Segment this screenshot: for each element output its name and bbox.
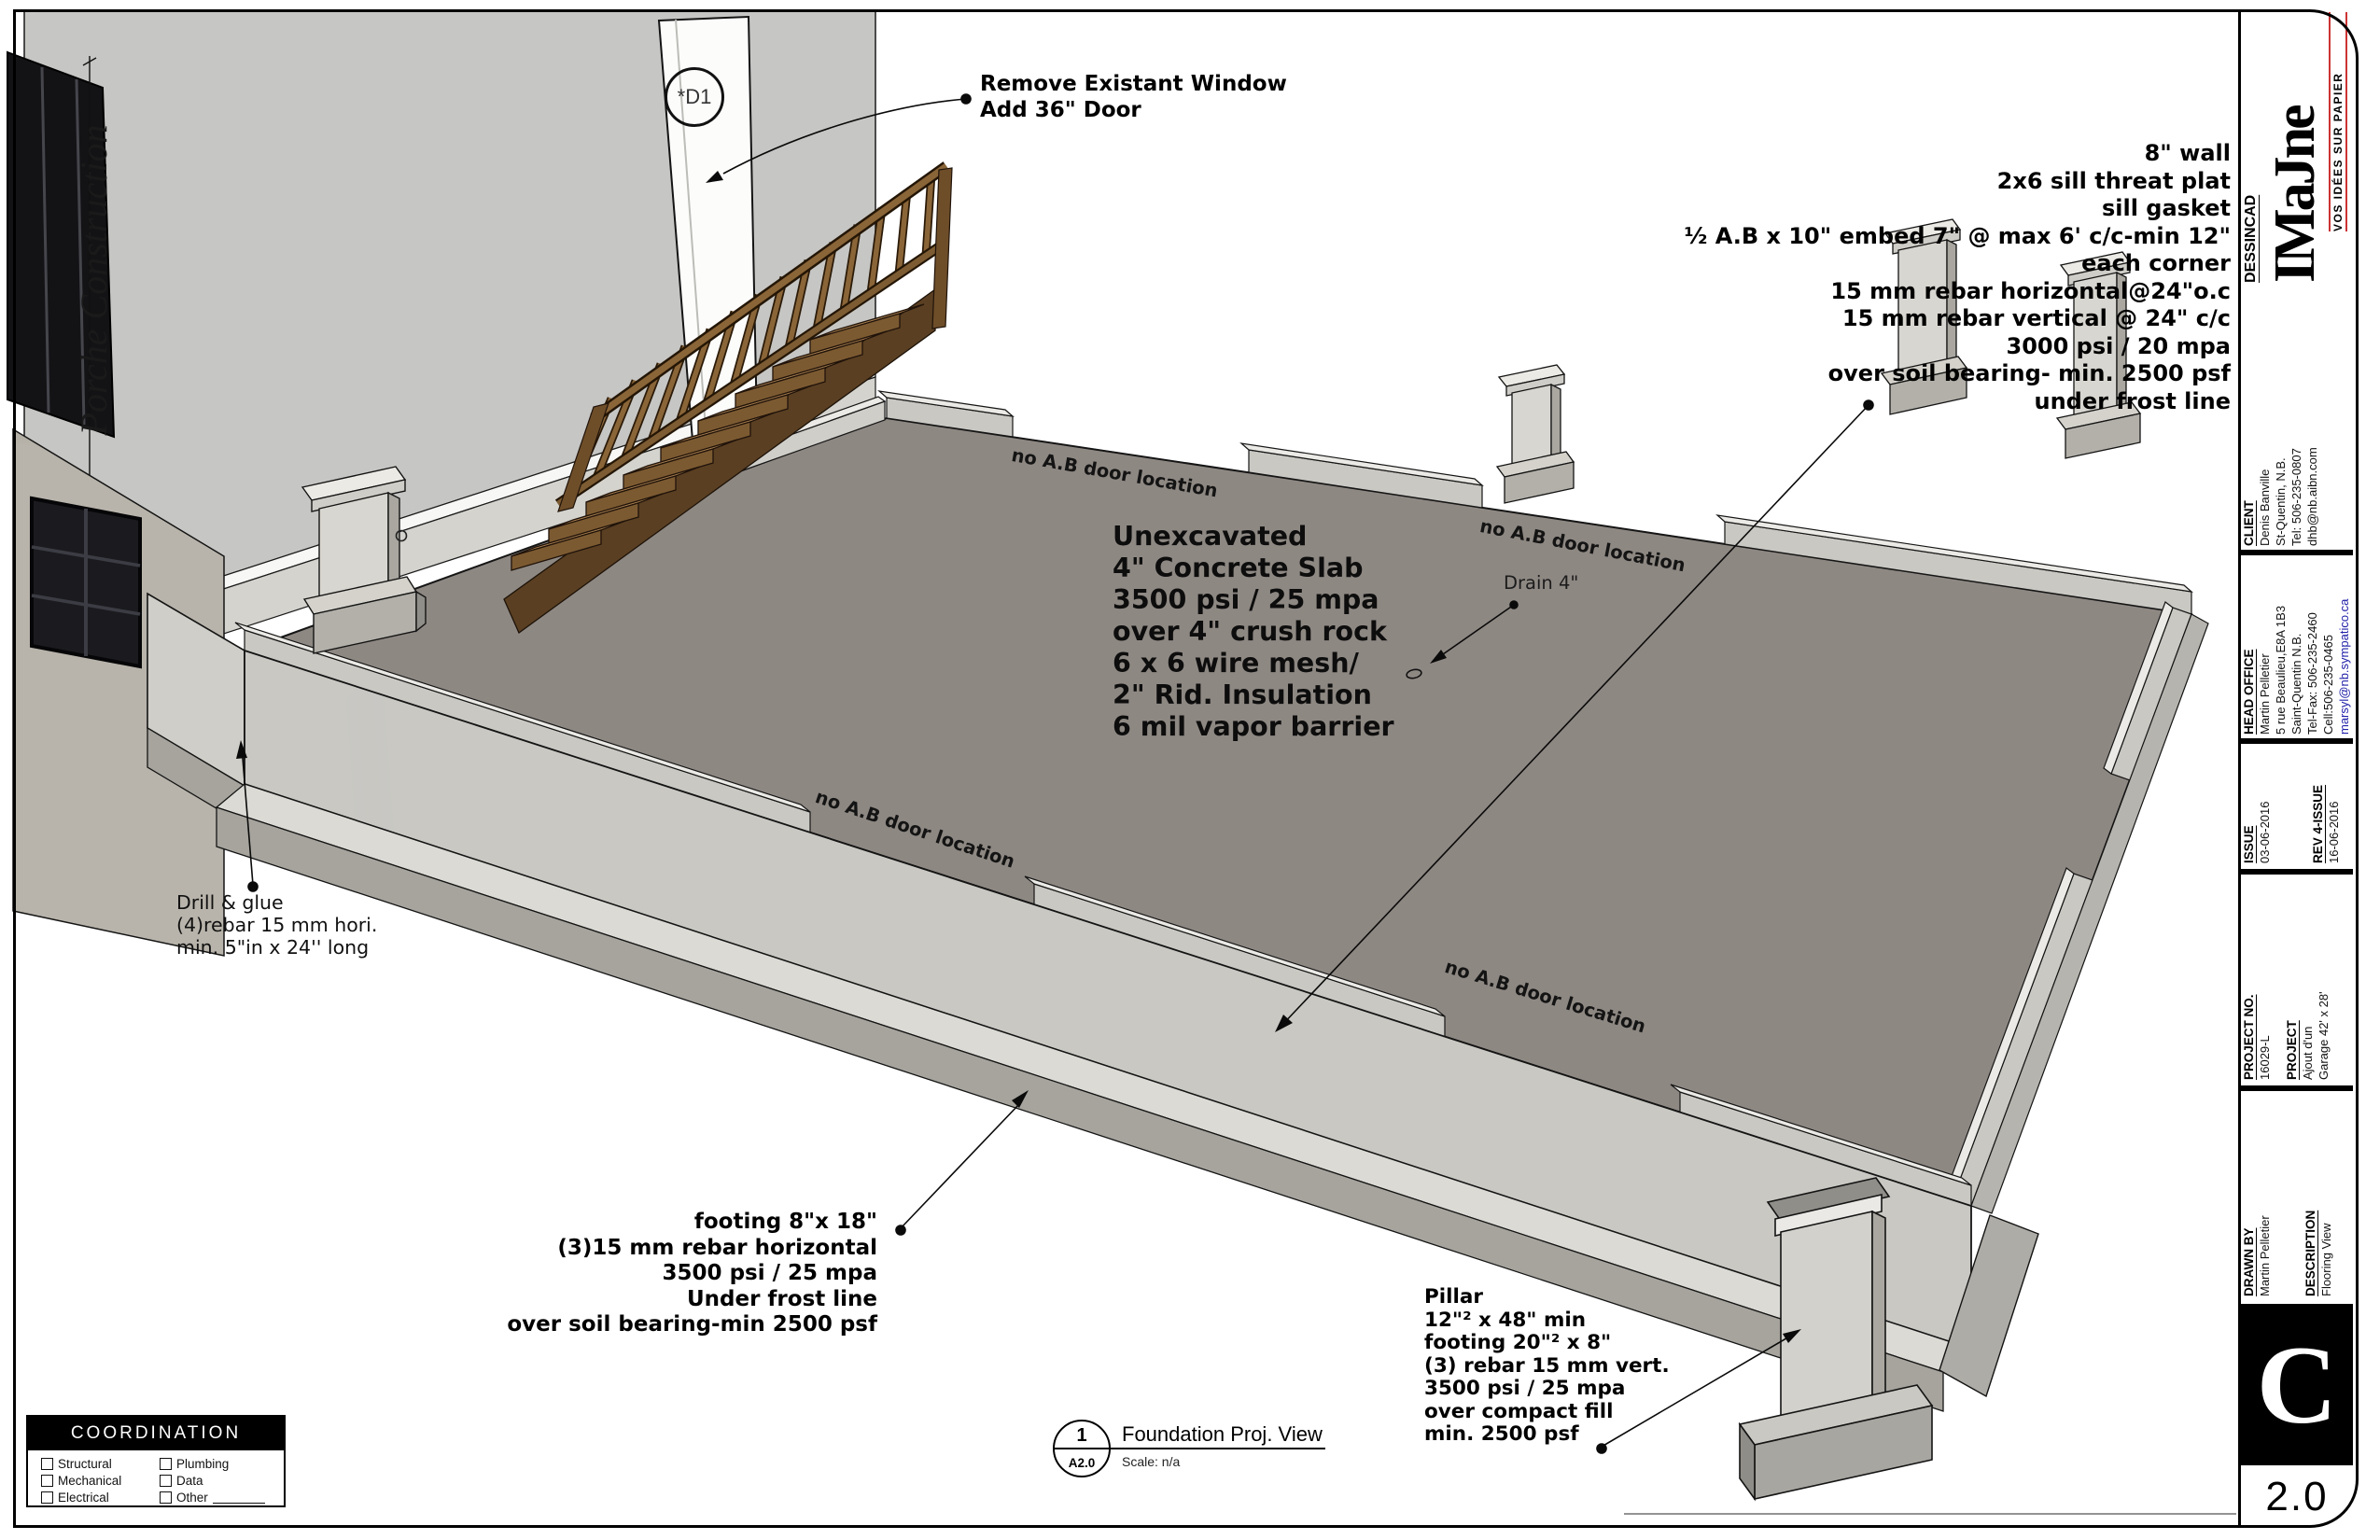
- view-title: Foundation Proj. View: [1122, 1422, 1323, 1447]
- checkbox-icon: [160, 1475, 172, 1487]
- title-block-project: PROJECT NO. 16029-L PROJECT Ajout d'un G…: [2241, 875, 2353, 1085]
- other-blank-line: [213, 1491, 265, 1504]
- wall-spec-note: 8" wall 2x6 sill threat plat sill gasket…: [1491, 140, 2231, 415]
- title-block-drawn-by: DRAWN BY Martin Pelletier DESCRIPTION Fl…: [2241, 1091, 2353, 1304]
- coordination-item-electrical: Electrical: [41, 1489, 160, 1505]
- email-link: marsyl@nb.sympatico.ca: [2336, 555, 2352, 735]
- note-line: min. 5"in x 24'' long: [176, 936, 377, 959]
- title-block-logo: DESSINCAD IMaJne VOS IDÉES SUR PAPIER: [2241, 12, 2353, 413]
- checkbox-icon: [160, 1491, 172, 1504]
- view-number: 1: [1055, 1425, 1109, 1447]
- note-line: (3)15 mm rebar horizontal: [504, 1236, 877, 1262]
- note-line: Pillar: [1424, 1286, 1670, 1309]
- note-line: 6 x 6 wire mesh/: [1113, 648, 1394, 679]
- note-line: 2" Rid. Insulation: [1113, 679, 1394, 711]
- pillar-note: Pillar 12"² x 48" min footing 20"² x 8" …: [1424, 1286, 1670, 1447]
- note-line: 6 mil vapor barrier: [1113, 711, 1394, 743]
- coordination-item-data: Data: [160, 1472, 278, 1489]
- sheet-number: 2.0: [2265, 1474, 2328, 1520]
- coordination-item-other: Other: [160, 1489, 278, 1505]
- sheet-letter-box: C: [2241, 1304, 2353, 1465]
- brand-name: DESSINCAD: [2241, 12, 2261, 283]
- note-line: 3000 psi / 20 mpa: [1491, 333, 2231, 361]
- title-block-head-office: HEAD OFFICE Martin Pelletier 5 rue Beaul…: [2241, 555, 2353, 738]
- note-line: 12"² x 48" min: [1424, 1309, 1670, 1333]
- note-line: min. 2500 psf: [1424, 1423, 1670, 1447]
- note-line: ½ A.B x 10" embed 7" @ max 6' c/c-min 12…: [1491, 223, 2231, 251]
- door-change-note: Remove Existant Window Add 36" Door: [980, 71, 1287, 123]
- note-line: 8" wall: [1491, 140, 2231, 168]
- coordination-item-plumbing: Plumbing: [160, 1455, 278, 1472]
- door-tag-bubble: *D1: [665, 67, 724, 127]
- note-line: 3500 psi / 25 mpa: [504, 1261, 877, 1287]
- note-line: over soil bearing-min 2500 psf: [504, 1312, 877, 1338]
- note-line: Under frost line: [504, 1287, 877, 1313]
- note-line: footing 20"² x 8": [1424, 1332, 1670, 1355]
- note-line: each corner: [1491, 250, 2231, 278]
- checkbox-icon: [41, 1475, 53, 1487]
- coordination-item-mechanical: Mechanical: [41, 1472, 160, 1489]
- porch-script-label: Porche Construction: [72, 61, 113, 499]
- view-number-bubble: 1 A2.0: [1053, 1420, 1111, 1477]
- sheet-number-box: 2.0: [2241, 1465, 2353, 1528]
- checkbox-icon: [41, 1491, 53, 1504]
- view-sheet-ref: A2.0: [1055, 1456, 1109, 1470]
- footing-note: footing 8"x 18" (3)15 mm rebar horizonta…: [504, 1210, 877, 1338]
- note-line: over soil bearing- min. 2500 psf: [1491, 360, 2231, 388]
- note-line: 3500 psi / 25 mpa: [1424, 1378, 1670, 1401]
- note-line: (4)rebar 15 mm hori.: [176, 914, 377, 936]
- sheet-letter: C: [2257, 1329, 2338, 1441]
- drill-glue-note: Drill & glue (4)rebar 15 mm hori. min. 5…: [176, 891, 377, 959]
- note-line: over 4" crush rock: [1113, 616, 1394, 648]
- note-line: 2x6 sill threat plat: [1491, 168, 2231, 196]
- note-line: Drill & glue: [176, 891, 377, 914]
- note-line: 15 mm rebar vertical @ 24" c/c: [1491, 305, 2231, 333]
- view-scale: Scale: n/a: [1122, 1454, 1180, 1469]
- coordination-title: COORDINATION: [28, 1417, 284, 1450]
- door-tag-label: *D1: [678, 85, 712, 109]
- website-link: www.dessicadimajne.com: [2352, 555, 2353, 735]
- note-line: over compact fill: [1424, 1401, 1670, 1424]
- note-line: 3500 psi / 25 mpa: [1113, 584, 1394, 616]
- note-line: footing 8"x 18": [504, 1210, 877, 1236]
- checkbox-icon: [160, 1458, 172, 1470]
- drain-label: Drain 4": [1504, 572, 1578, 594]
- brand-logo: IMaJne: [2261, 12, 2329, 283]
- note-line: Add 36" Door: [980, 97, 1287, 123]
- coordination-box: COORDINATION Structural Mechanical Elect…: [26, 1415, 286, 1507]
- note-line: (3) rebar 15 mm vert.: [1424, 1355, 1670, 1379]
- note-line: 15 mm rebar horizontal@24"o.c: [1491, 278, 2231, 306]
- note-line: sill gasket: [1491, 195, 2231, 223]
- title-block-client: CLIENT Denis Banville St-Quentin, N.B. T…: [2241, 413, 2353, 550]
- title-block: DESSINCAD IMaJne VOS IDÉES SUR PAPIER CL…: [2238, 12, 2353, 1528]
- drawing-sheet: Remove Existant Window Add 36" Door *D1 …: [0, 0, 2380, 1540]
- note-line: under frost line: [1491, 388, 2231, 416]
- note-line: 4" Concrete Slab: [1113, 553, 1394, 584]
- note-line: Unexcavated: [1113, 521, 1394, 553]
- note-line: Remove Existant Window: [980, 71, 1287, 97]
- brand-tagline: VOS IDÉES SUR PAPIER: [2329, 12, 2347, 231]
- slab-note: Unexcavated 4" Concrete Slab 3500 psi / …: [1113, 521, 1394, 743]
- checkbox-icon: [41, 1458, 53, 1470]
- coordination-item-structural: Structural: [41, 1455, 160, 1472]
- title-block-issue: ISSUE 03-06-2016 REV 4-ISSUE 16-06-2016: [2241, 744, 2353, 869]
